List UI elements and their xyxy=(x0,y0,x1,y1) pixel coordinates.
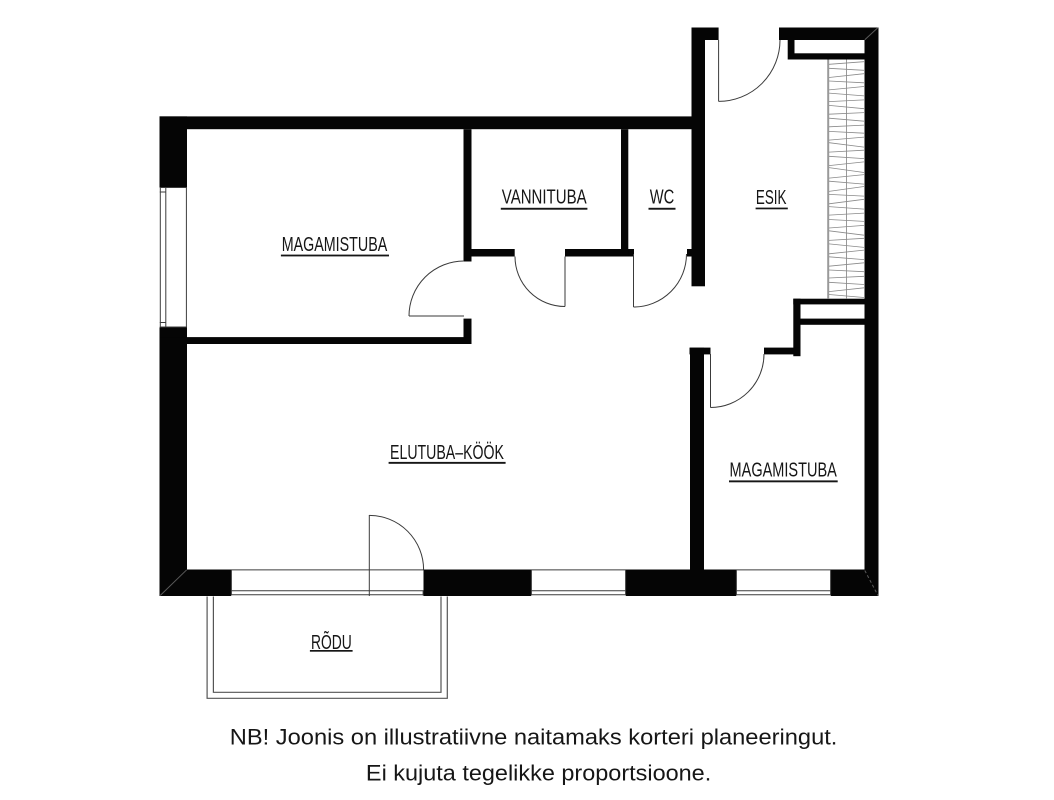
svg-text:Ei kujuta tegelikke proportsio: Ei kujuta tegelikke proportsioone. xyxy=(366,761,711,786)
svg-text:ESIK: ESIK xyxy=(756,186,787,209)
svg-text:MAGAMISTUBA: MAGAMISTUBA xyxy=(730,458,838,481)
svg-text:VANNITUBA: VANNITUBA xyxy=(502,186,587,209)
svg-text:MAGAMISTUBA: MAGAMISTUBA xyxy=(282,233,388,256)
svg-text:WC: WC xyxy=(650,186,675,209)
svg-text:NB! Joonis on illustratiivne n: NB! Joonis on illustratiivne naitamaks k… xyxy=(230,724,838,749)
svg-text:ELUTUBA–KÖÖK: ELUTUBA–KÖÖK xyxy=(390,441,504,464)
